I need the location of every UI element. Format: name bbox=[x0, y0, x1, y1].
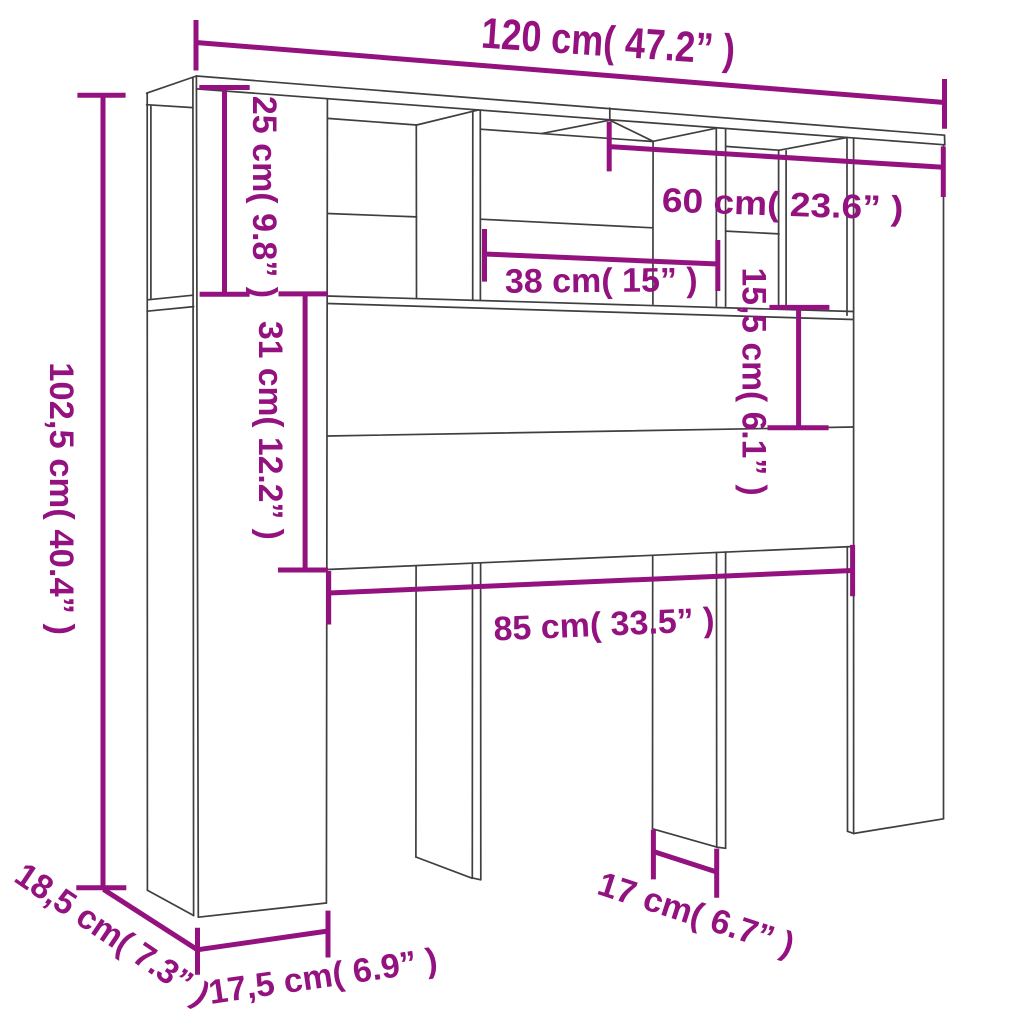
svg-text:102,5 cm( 40.4” ): 102,5 cm( 40.4” ) bbox=[42, 362, 80, 635]
svg-text:31 cm( 12.2” ): 31 cm( 12.2” ) bbox=[251, 321, 289, 540]
svg-text:38 cm( 15” ): 38 cm( 15” ) bbox=[505, 261, 698, 301]
svg-text:25 cm( 9.8” ): 25 cm( 9.8” ) bbox=[245, 96, 283, 298]
svg-text:15,5 cm( 6.1” ): 15,5 cm( 6.1” ) bbox=[734, 268, 772, 496]
